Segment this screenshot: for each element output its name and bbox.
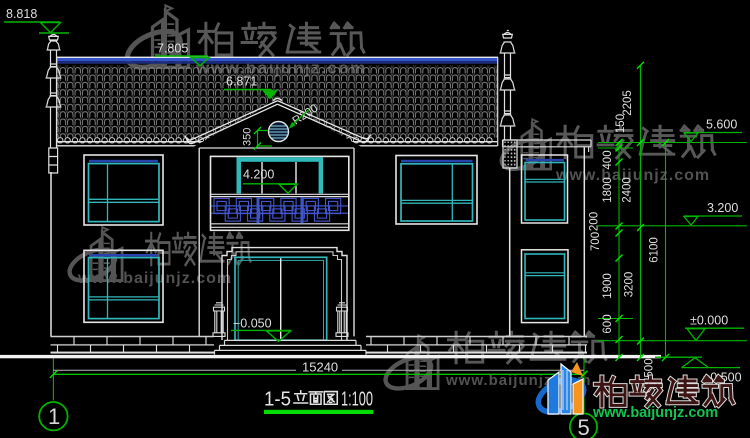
svg-text:8.818: 8.818: [6, 7, 37, 21]
svg-text:7.805: 7.805: [157, 42, 188, 56]
svg-text:600: 600: [602, 314, 614, 333]
svg-text:−0.050: −0.050: [233, 317, 272, 331]
svg-text:150: 150: [615, 114, 627, 133]
svg-text:2205: 2205: [622, 90, 634, 116]
svg-text:1:100: 1:100: [341, 389, 373, 411]
svg-text:±0.000: ±0.000: [690, 314, 728, 328]
svg-text:4.200: 4.200: [243, 168, 274, 182]
svg-text:www.baijunjz.com: www.baijunjz.com: [77, 270, 232, 287]
svg-text:3.200: 3.200: [707, 201, 738, 215]
svg-text:2400: 2400: [622, 177, 634, 203]
svg-text:www.baijunjz.com: www.baijunjz.com: [592, 405, 718, 421]
svg-text:1900: 1900: [602, 273, 614, 299]
svg-text:6100: 6100: [649, 237, 661, 263]
svg-text:400: 400: [602, 150, 614, 169]
svg-text:3200: 3200: [624, 272, 636, 298]
svg-text:1800: 1800: [602, 177, 614, 203]
svg-text:700: 700: [590, 232, 602, 251]
svg-text:6.871: 6.871: [226, 75, 257, 89]
svg-text:15240: 15240: [302, 360, 338, 375]
svg-text:5: 5: [578, 415, 590, 438]
svg-text:5.600: 5.600: [706, 118, 737, 132]
svg-text:200: 200: [589, 212, 601, 231]
svg-text:1-5: 1-5: [264, 389, 291, 411]
svg-text:1: 1: [48, 404, 60, 429]
svg-text:350: 350: [242, 128, 254, 146]
